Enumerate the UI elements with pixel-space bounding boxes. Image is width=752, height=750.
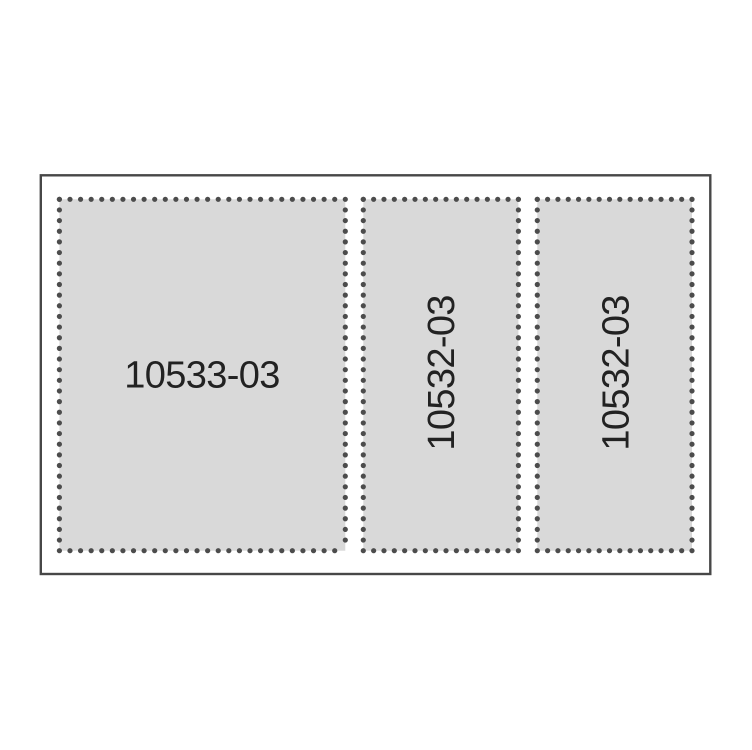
svg-text:10532-03: 10532-03 bbox=[596, 295, 638, 450]
svg-text:10533-03: 10533-03 bbox=[124, 354, 279, 396]
svg-text:10532-03: 10532-03 bbox=[421, 295, 463, 450]
